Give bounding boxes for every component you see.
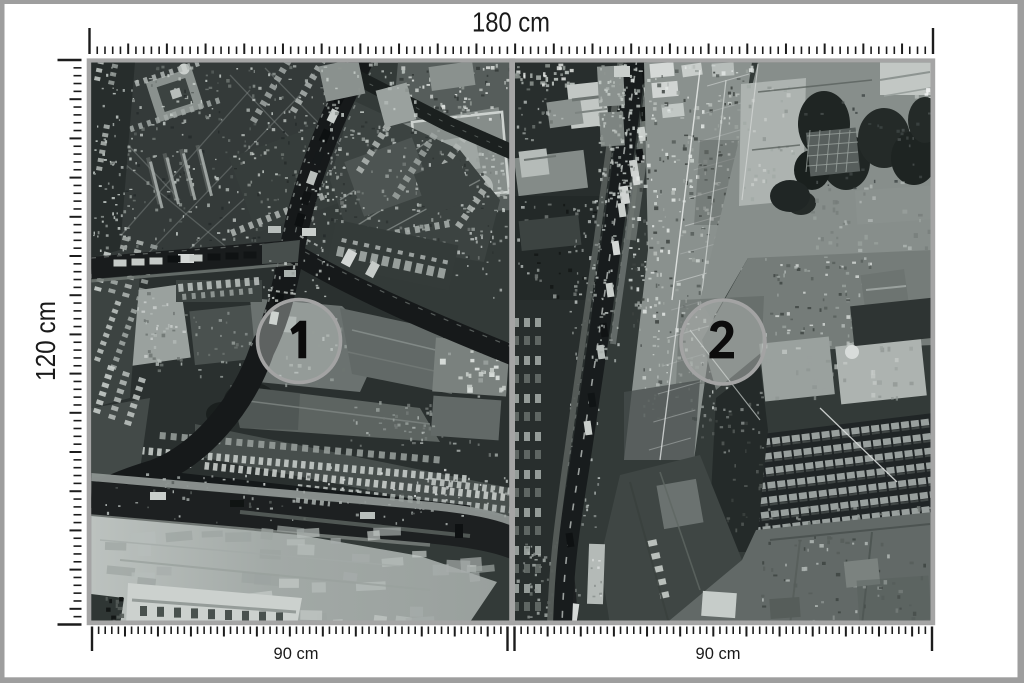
svg-text:90 cm: 90 cm (274, 645, 319, 663)
svg-text:180 cm: 180 cm (472, 7, 550, 38)
svg-text:90 cm: 90 cm (696, 645, 741, 663)
svg-text:120 cm: 120 cm (30, 301, 61, 381)
